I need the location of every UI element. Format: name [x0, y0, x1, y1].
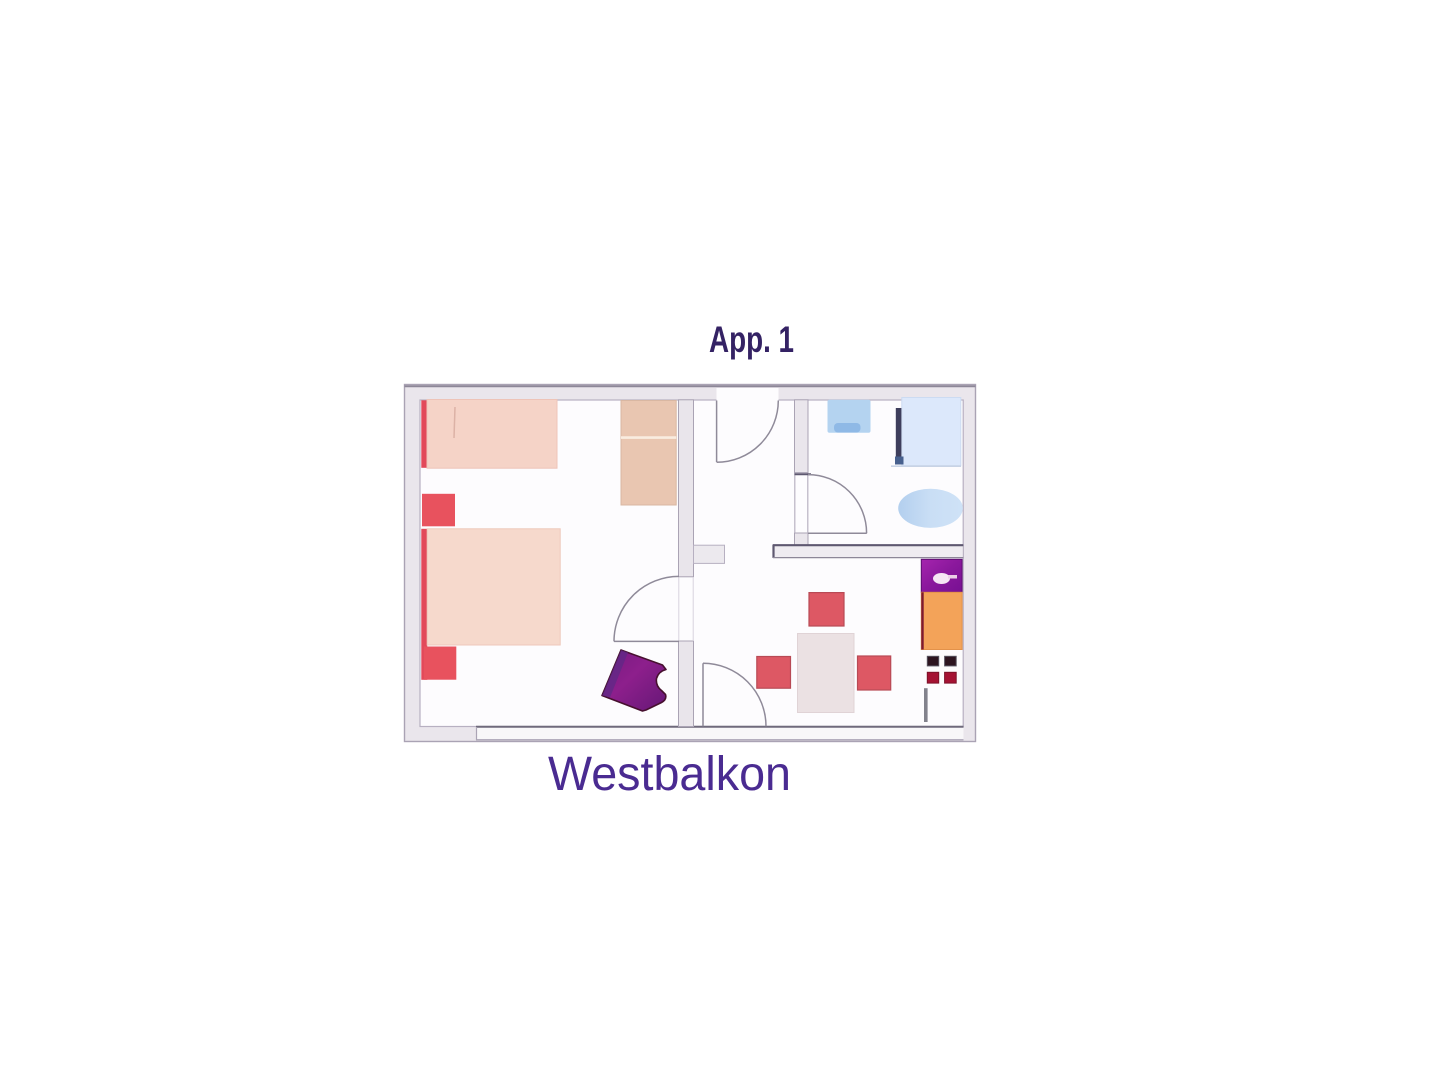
svg-text:App. 1: App. 1 — [709, 319, 794, 360]
svg-text:Westbalkon: Westbalkon — [548, 748, 791, 801]
